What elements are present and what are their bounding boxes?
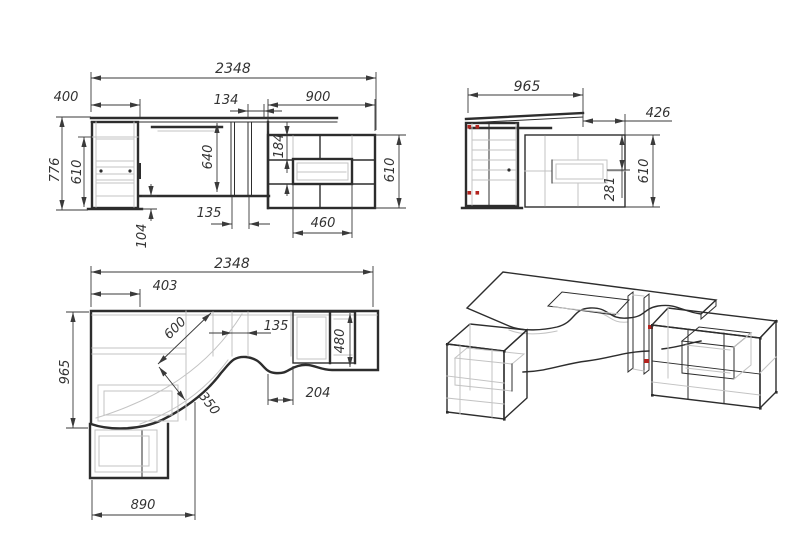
left-cabinet: [92, 122, 138, 208]
dim-plan-gap: 135: [264, 319, 289, 334]
dim-plan-edge-offset: 204: [306, 386, 331, 401]
fastener-mark: [476, 125, 480, 129]
dim-front-gap-bottom: 135: [197, 206, 222, 221]
dim-front-width-right: 900: [306, 90, 331, 105]
front-view: 2348 400 134 900 776 610 640 184: [48, 61, 406, 248]
dim-plan-curve-radius: 350: [195, 389, 222, 418]
iso-left-pedestal: [446, 324, 527, 421]
drawer-knob: [507, 168, 510, 171]
dim-front-width-total: 2348: [215, 61, 251, 77]
pedestal-plan: [90, 424, 168, 478]
drawer-knob: [99, 169, 102, 172]
iso-open-drawer-left: [455, 348, 524, 391]
blueprint-canvas: 2348 400 134 900 776 610 640 184: [0, 0, 800, 533]
side-dimensions: 965 426 281 610: [468, 79, 672, 207]
fastener-mark: [476, 191, 480, 195]
dim-front-plinth: 104: [135, 224, 150, 249]
desk-drawing: 2348 400 134 900 776 610 640 184: [0, 0, 800, 533]
iso-front-rail: [523, 351, 649, 372]
dim-side-depth-total: 965: [514, 79, 541, 95]
front-structure: [88, 118, 375, 209]
dim-front-right-cabinet-height: 610: [383, 158, 398, 183]
dim-front-drawer-width: 460: [311, 216, 336, 231]
fastener-mark: [644, 359, 649, 363]
plan-view: 2348 403 965 600 350 135 480 204 890: [58, 256, 378, 520]
fastener-mark: [468, 191, 472, 195]
partition-2: [248, 122, 252, 196]
dim-plan-depth-right: 480: [333, 329, 348, 354]
dim-side-shelf-depth: 426: [646, 106, 671, 121]
fastener-mark: [468, 125, 472, 129]
dim-plan-corner-radius: 600: [161, 314, 189, 342]
drawer-side: [552, 160, 607, 183]
dim-front-left-cabinet-height: 610: [70, 160, 85, 185]
side-structure: [462, 113, 625, 208]
side-view: 965 426 281 610: [462, 79, 672, 208]
iso-keyboard-tray: [548, 292, 629, 315]
iso-desktop: [467, 272, 716, 330]
dim-front-niche-height: 640: [201, 145, 216, 170]
dim-side-height: 610: [637, 159, 652, 184]
dim-side-shelf-offset: 281: [603, 177, 618, 202]
pedestal-side: [466, 123, 518, 206]
dim-front-drawer-offset: 184: [272, 134, 287, 159]
drawer-knob: [128, 169, 131, 172]
dim-plan-pedestal-width: 890: [131, 498, 156, 513]
iso-right-shelf-unit: [651, 308, 778, 410]
iso-partitions: [628, 292, 653, 374]
dim-front-width-gap: 134: [214, 93, 239, 108]
dim-plan-depth-left: 965: [58, 360, 73, 385]
dim-plan-width-total: 2348: [214, 256, 250, 272]
dim-plan-left-offset: 403: [153, 279, 178, 294]
partition-1: [231, 122, 235, 196]
dim-front-width-left: 400: [54, 90, 79, 105]
iso-view: [446, 272, 778, 421]
plan-dimensions: 2348 403 965 600 350 135 480 204 890: [58, 256, 373, 520]
dim-front-height-total: 776: [48, 158, 63, 183]
